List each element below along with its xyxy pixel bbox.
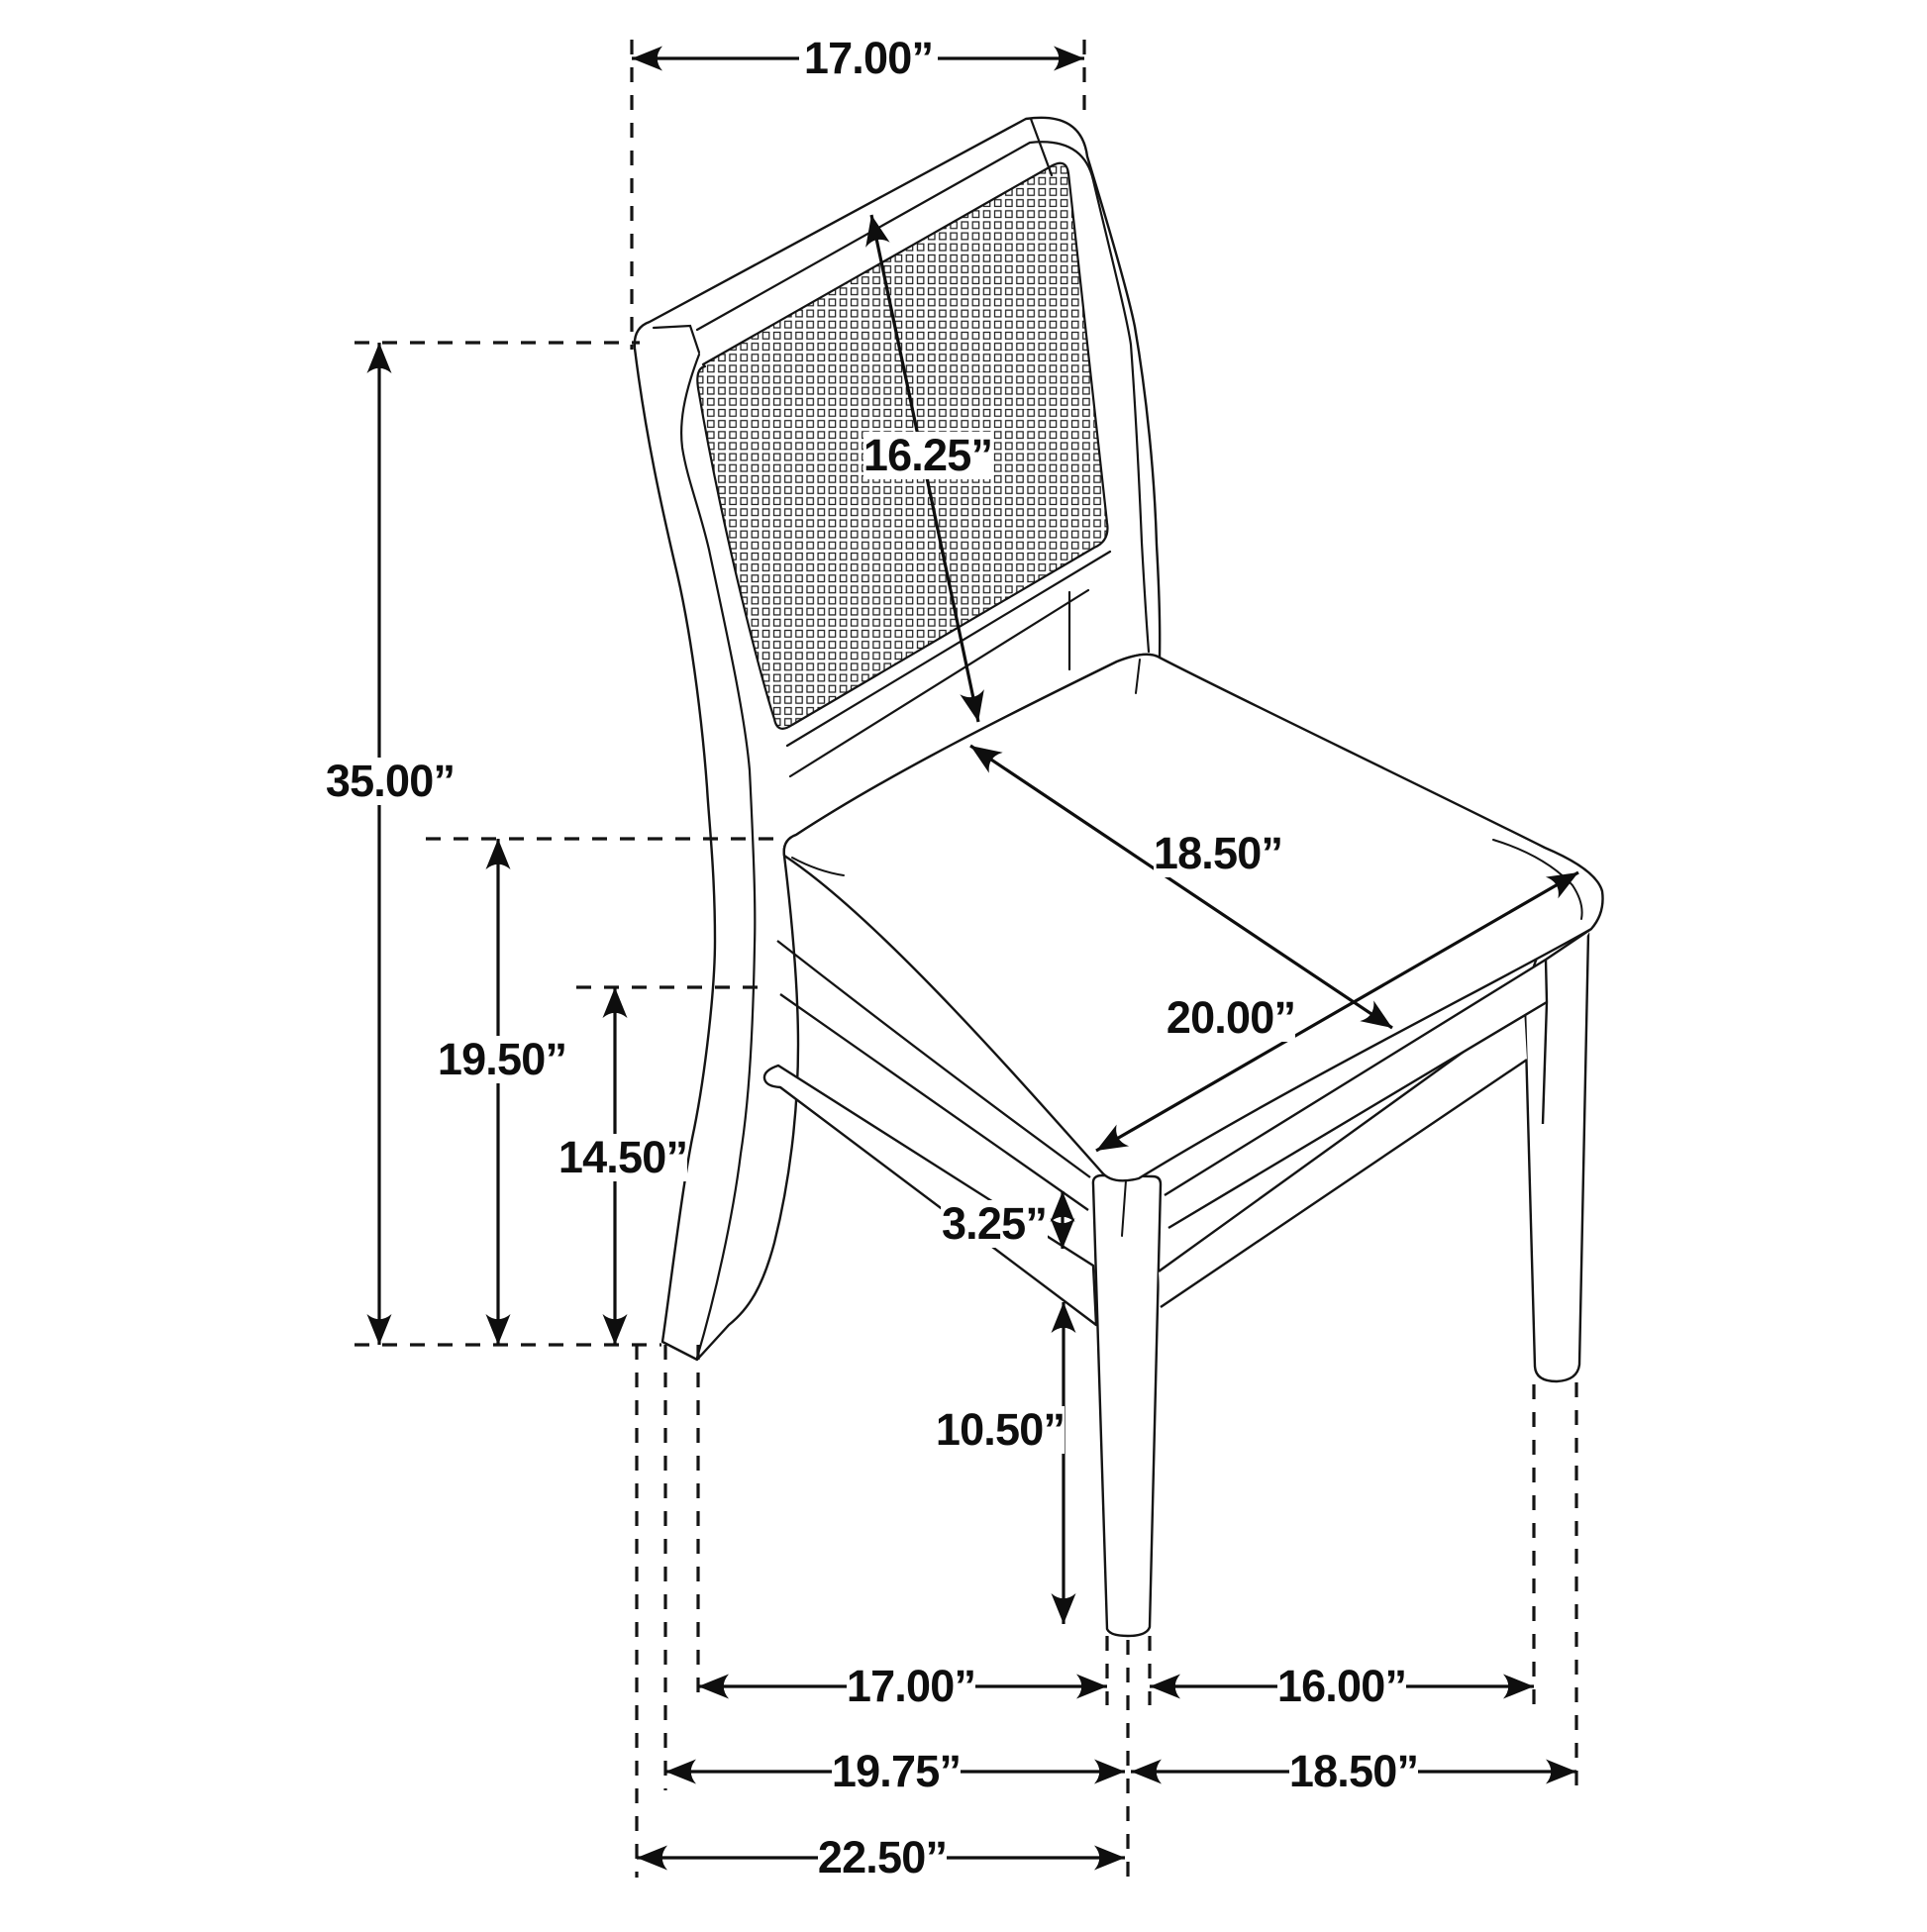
svg-text:35.00”: 35.00” (326, 756, 455, 806)
svg-text:3.25”: 3.25” (942, 1198, 1047, 1249)
svg-text:14.50”: 14.50” (558, 1132, 687, 1182)
svg-text:10.50”: 10.50” (936, 1404, 1065, 1455)
svg-text:20.00”: 20.00” (1166, 992, 1295, 1043)
svg-text:19.75”: 19.75” (832, 1746, 961, 1796)
svg-text:17.00”: 17.00” (847, 1661, 975, 1711)
svg-text:17.00”: 17.00” (804, 33, 933, 83)
svg-text:18.50”: 18.50” (1289, 1746, 1418, 1796)
svg-text:18.50”: 18.50” (1154, 828, 1282, 878)
svg-text:22.50”: 22.50” (818, 1832, 947, 1882)
svg-text:19.50”: 19.50” (438, 1034, 566, 1084)
svg-text:16.00”: 16.00” (1277, 1661, 1406, 1711)
svg-text:16.25”: 16.25” (863, 430, 992, 480)
